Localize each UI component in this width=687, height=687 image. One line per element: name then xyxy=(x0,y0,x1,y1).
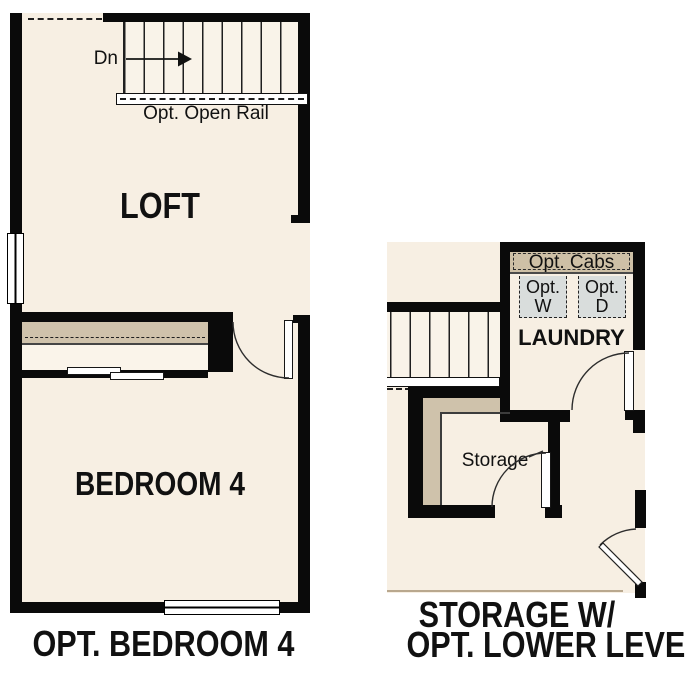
soffit-line xyxy=(440,412,510,414)
floorplan-canvas: Dn Opt. Open Rail LOFT BEDROOM 4 OPT. BE… xyxy=(0,0,687,687)
opt-washer-box: Opt. W xyxy=(519,276,567,318)
wall xyxy=(408,505,495,518)
window xyxy=(164,600,280,615)
dryer-label-line1: Opt. xyxy=(579,278,625,297)
storage-door-leaf xyxy=(541,452,551,508)
washer-label-line2: W xyxy=(520,297,566,316)
lower-stairs xyxy=(387,312,500,377)
laundry-door-leaf xyxy=(624,351,634,411)
wall xyxy=(10,312,233,322)
wall xyxy=(208,312,233,372)
rail-dashed-line xyxy=(120,98,304,100)
bedroom-door-leaf xyxy=(284,320,293,379)
window xyxy=(7,233,24,304)
rail-label: Opt. Open Rail xyxy=(106,104,306,124)
wall xyxy=(635,490,646,528)
washer-label-line1: Opt. xyxy=(520,278,566,297)
soffit-line xyxy=(440,412,442,507)
right-plan-caption-line2: OPT. LOWER LEVEL xyxy=(407,630,628,660)
bedroom-room-label: BEDROOM 4 xyxy=(75,471,245,496)
wall xyxy=(408,387,423,512)
opening-dashed-line xyxy=(28,18,102,20)
laundry-room-label: LAUNDRY xyxy=(510,328,633,347)
left-plan-caption: OPT. BEDROOM 4 xyxy=(33,629,288,659)
dryer-label-line2: D xyxy=(579,297,625,316)
wall-end-cap xyxy=(291,215,310,223)
wall xyxy=(103,13,310,22)
closet-shelf xyxy=(22,322,208,345)
loft-stairs xyxy=(123,22,298,93)
opt-cabs-strip: Opt. Cabs xyxy=(510,252,633,274)
loft-room-label: LOFT xyxy=(75,192,245,220)
wall xyxy=(298,315,310,613)
wall xyxy=(635,582,646,598)
opt-cabs-label: Opt. Cabs xyxy=(510,253,633,272)
closet-sliding-door-panel xyxy=(110,372,164,380)
closet-rod-dashed-line xyxy=(25,337,205,338)
storage-room-label: Storage xyxy=(450,451,540,471)
wall xyxy=(633,410,645,433)
stair-direction-label: Dn xyxy=(82,49,118,69)
understair-soffit xyxy=(423,398,441,507)
stair-edge-rail xyxy=(387,377,500,387)
floor-cut-edge xyxy=(387,590,623,592)
opt-dryer-box: Opt. D xyxy=(578,276,626,318)
wall xyxy=(633,242,645,350)
opt-open-rail xyxy=(116,93,308,105)
wall xyxy=(500,242,645,252)
wall xyxy=(387,302,500,312)
